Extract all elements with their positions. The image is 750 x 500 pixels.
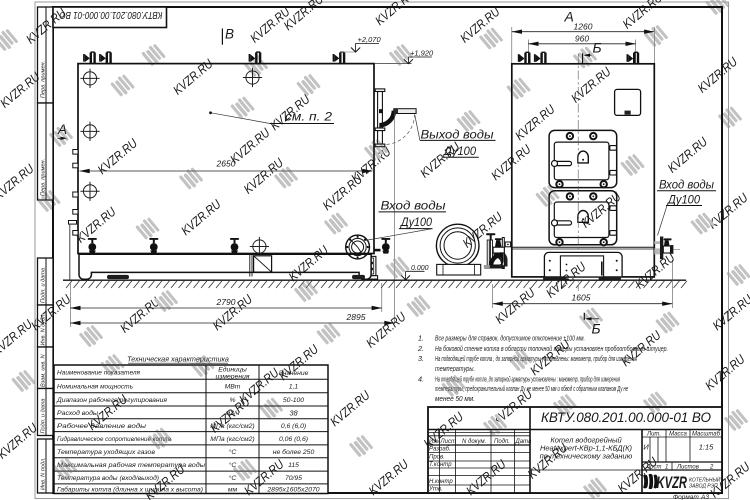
svg-text:KVZR.RU: KVZR.RU [417, 139, 463, 181]
svg-text:KVZR.RU: KVZR.RU [664, 134, 710, 176]
svg-text:Пров.: Пров. [429, 455, 445, 461]
svg-text:Температура уходящих газов: Температура уходящих газов [57, 448, 155, 456]
svg-text:МПа (кгс/см2): МПа (кгс/см2) [210, 436, 254, 443]
svg-text:Дата: Дата [515, 439, 532, 445]
svg-text:2895: 2895 [346, 312, 366, 322]
svg-text:И: И [643, 443, 649, 452]
svg-text:KVZR.RU: KVZR.RU [492, 285, 538, 327]
svg-text:А: А [564, 9, 574, 25]
svg-text:°С: °С [229, 474, 237, 482]
svg-text:960: 960 [575, 34, 589, 44]
svg-text:Вход воды: Вход воды [381, 201, 447, 213]
svg-text:3.: 3. [418, 354, 424, 363]
svg-text:Выход воды: Выход воды [421, 130, 495, 142]
svg-text:0,6 (6,0): 0,6 (6,0) [281, 423, 306, 430]
svg-text:Вход воды: Вход воды [659, 180, 715, 192]
svg-text:+1,920: +1,920 [410, 49, 434, 58]
svg-text:KVZR.RU: KVZR.RU [363, 309, 409, 351]
svg-text:50-100: 50-100 [283, 397, 304, 404]
svg-text:N докум.: N докум. [462, 439, 486, 445]
svg-text:температуры.: температуры. [435, 364, 475, 373]
svg-text:МВт: МВт [225, 384, 241, 391]
svg-text:KVZR: KVZR [657, 474, 688, 493]
svg-text:Инв. N подл.: Инв. N подл. [40, 457, 46, 490]
svg-text:Масштаб: Масштаб [692, 431, 721, 437]
svg-text:Подп.: Подп. [494, 439, 510, 445]
svg-text:°С: °С [229, 448, 237, 456]
svg-text:измерения: измерения [215, 373, 249, 380]
svg-text:Ду100: Ду100 [666, 194, 701, 206]
svg-text:Температура воды (вход/выход): Температура воды (вход/выход) [57, 474, 159, 482]
svg-text:Техническая характеристика: Техническая характеристика [127, 355, 229, 364]
svg-text:KVZR.RU: KVZR.RU [694, 54, 740, 96]
svg-text:менее 50 мм.: менее 50 мм. [435, 394, 475, 403]
svg-text:115: 115 [288, 462, 299, 469]
svg-text:+2,070: +2,070 [358, 35, 382, 44]
svg-text:Т.контр: Т.контр [429, 462, 452, 468]
svg-text:Номинальная мощность: Номинальная мощность [57, 384, 133, 391]
svg-text:1605: 1605 [572, 293, 591, 303]
svg-text:Подп. и дата: Подп. и дата [40, 268, 46, 303]
svg-text:мм: мм [228, 487, 238, 494]
svg-text:2: 2 [709, 465, 714, 471]
svg-text:38: 38 [289, 408, 298, 417]
svg-text:KVZR.RU: KVZR.RU [365, 456, 411, 498]
svg-text:1.: 1. [418, 334, 424, 343]
svg-text:Б: Б [593, 40, 602, 56]
svg-text:На отводящей трубе котла ,до з: На отводящей трубе котла ,до запорной ар… [435, 374, 620, 383]
svg-text:Листов: Листов [676, 465, 699, 471]
svg-text:KVZR.RU: KVZR.RU [709, 291, 750, 333]
svg-text:0.000: 0.000 [411, 265, 429, 272]
svg-text:70/95: 70/95 [285, 475, 302, 482]
svg-text:Взам. инв. N: Взам. инв. N [40, 353, 46, 387]
svg-text:Н.контр: Н.контр [429, 479, 453, 485]
svg-text:А3: А3 [700, 494, 709, 500]
svg-text:Лит.: Лит. [646, 431, 661, 437]
svg-text:KVZR.RU: KVZR.RU [0, 316, 36, 358]
svg-text:Ду100: Ду100 [399, 217, 432, 229]
svg-text:KVZR.RU: KVZR.RU [0, 161, 37, 203]
svg-text:KVZR.RU: KVZR.RU [372, 0, 418, 28]
svg-text:KVZR.RU: KVZR.RU [702, 351, 748, 393]
svg-text:Масса: Масса [669, 431, 687, 437]
svg-text:Утв.: Утв. [428, 487, 443, 493]
svg-text:Единицы: Единицы [218, 366, 246, 374]
svg-text:0,06 (0,6): 0,06 (0,6) [279, 436, 308, 443]
svg-text:4.: 4. [418, 374, 424, 383]
svg-text:Наименование показателя: Наименование показателя [57, 370, 140, 377]
svg-text:Габариты котла (длинна х ширин: Габариты котла (длинна х ширина х высота… [57, 486, 203, 494]
svg-text:2895х1605х2070: 2895х1605х2070 [266, 487, 319, 494]
svg-text:В: В [225, 27, 234, 42]
svg-text:1,1: 1,1 [289, 384, 299, 391]
svg-text:КВТУ.080.201.00.000-01 ВО: КВТУ.080.201.00.000-01 ВО [60, 9, 163, 21]
svg-text:2.: 2. [417, 344, 424, 353]
svg-text:1260: 1260 [574, 21, 593, 31]
svg-text:Перв. примен.: Перв. примен. [40, 159, 46, 196]
svg-text:не более 250: не более 250 [273, 448, 315, 456]
svg-text:KVZR.RU: KVZR.RU [280, 0, 326, 33]
svg-text:1:15: 1:15 [699, 443, 714, 452]
svg-text:KVZR.RU: KVZR.RU [327, 387, 373, 429]
svg-text:Подп. и дата: Подп. и дата [40, 398, 46, 433]
svg-text:Формат: Формат [673, 494, 699, 500]
svg-text:KVZR.RU: KVZR.RU [0, 69, 43, 111]
svg-text:1: 1 [665, 465, 668, 471]
